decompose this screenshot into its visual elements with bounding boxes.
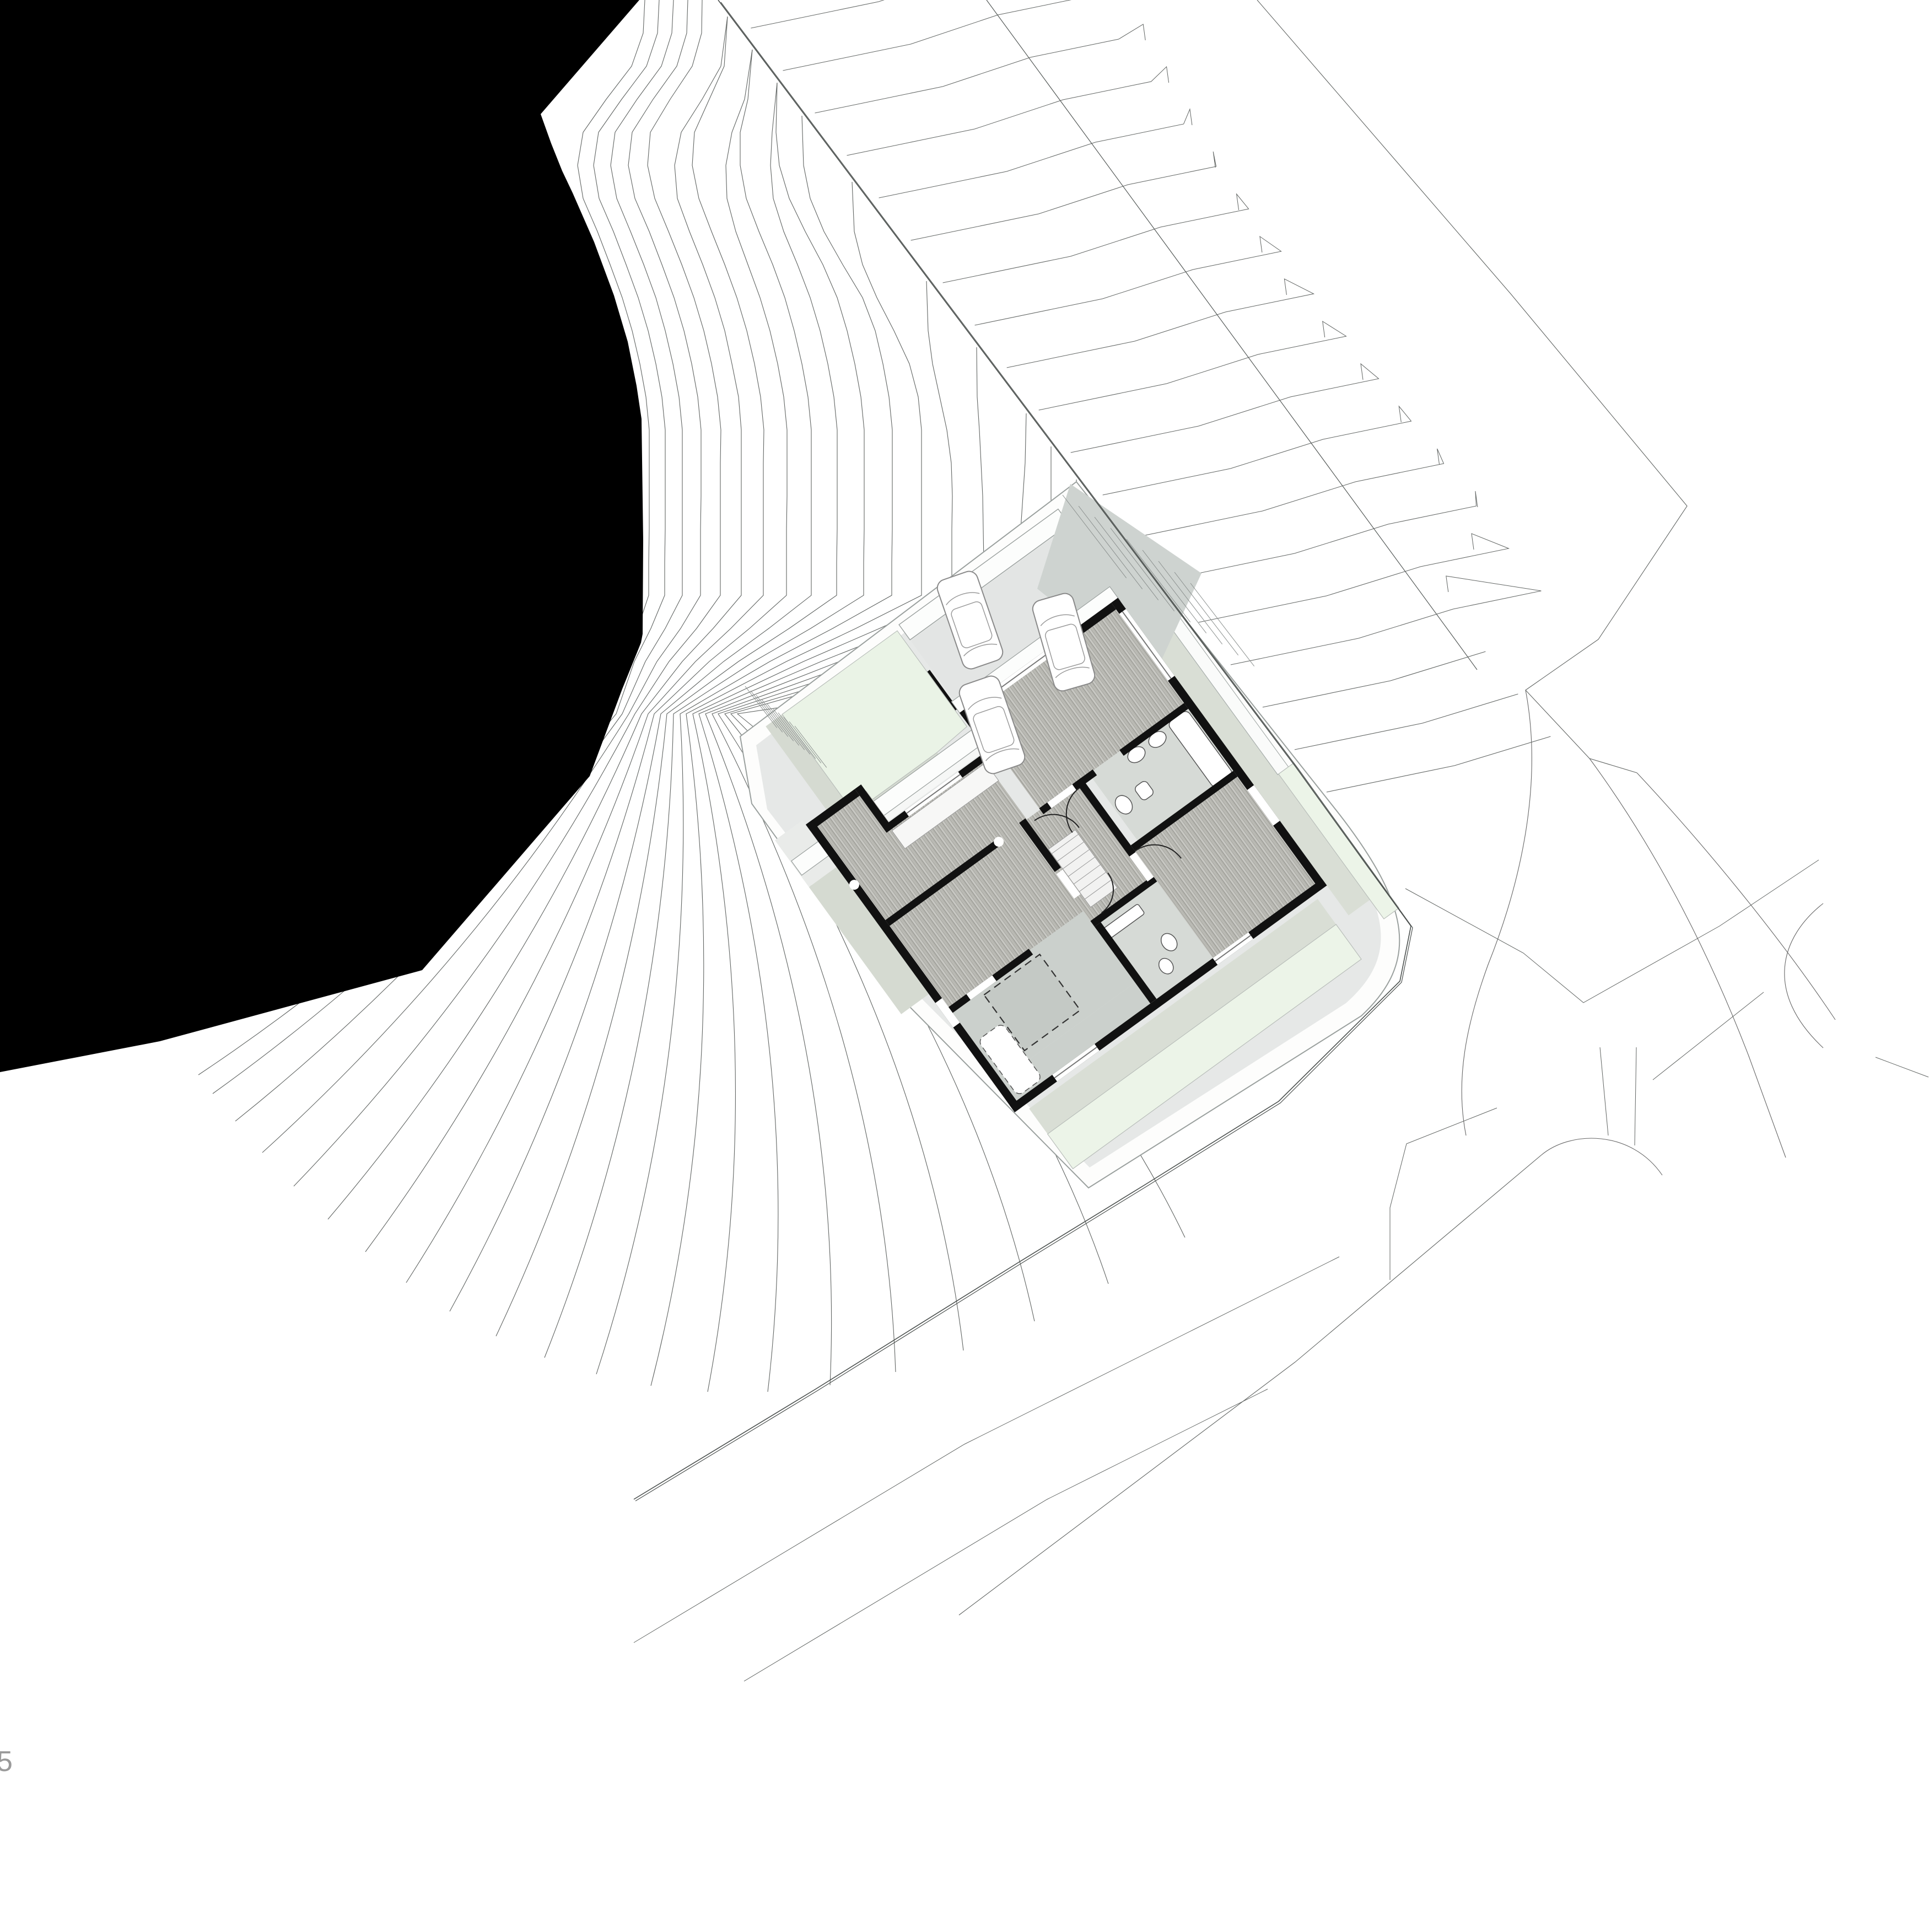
svg-text:5: 5 [0, 1746, 13, 1778]
